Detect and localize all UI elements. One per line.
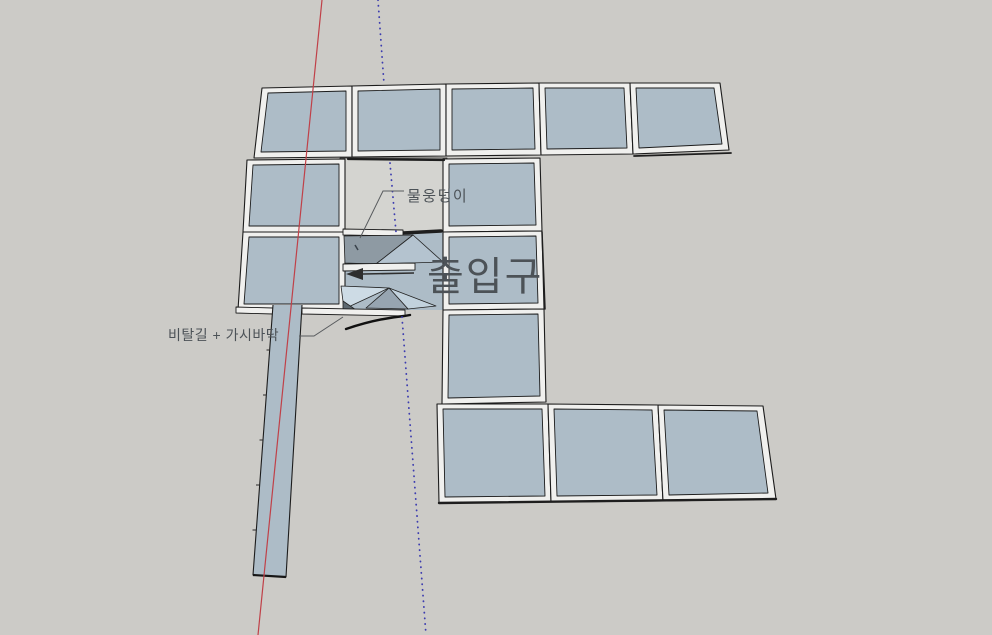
tile-bottom-1-face[interactable]: [443, 409, 545, 497]
tile-top-2-face[interactable]: [358, 89, 440, 151]
tile-top-5-face[interactable]: [636, 88, 722, 148]
tile-top-3-face[interactable]: [452, 88, 535, 150]
tile-left-row3-face[interactable]: [244, 237, 339, 304]
tile-bottom-2-face[interactable]: [554, 409, 657, 496]
puddle-label[interactable]: 물웅덩이: [407, 188, 468, 205]
viewport-canvas[interactable]: 물웅덩이 비탈길 + 가시바닥 출입구: [0, 0, 992, 635]
tile-top-4-face[interactable]: [545, 88, 627, 149]
slope-label[interactable]: 비탈길 + 가시바닥: [168, 327, 279, 343]
shadow-under-top-row: [348, 159, 444, 160]
entrance-top-band: [343, 263, 415, 271]
entrance-label[interactable]: 출입구: [427, 255, 543, 299]
modeling-viewport[interactable]: 물웅덩이 비탈길 + 가시바닥 출입구: [0, 0, 992, 635]
shadow-puddle-edge: [403, 231, 441, 233]
tile-left-row2-face[interactable]: [249, 164, 339, 226]
row3-bottom-band-left: [236, 307, 273, 314]
tile-mid-row4-face[interactable]: [448, 314, 540, 398]
entrance-arrow-shaft: [363, 273, 414, 274]
tile-top-1-face[interactable]: [261, 91, 346, 152]
tile-bottom-3-face[interactable]: [664, 410, 768, 495]
